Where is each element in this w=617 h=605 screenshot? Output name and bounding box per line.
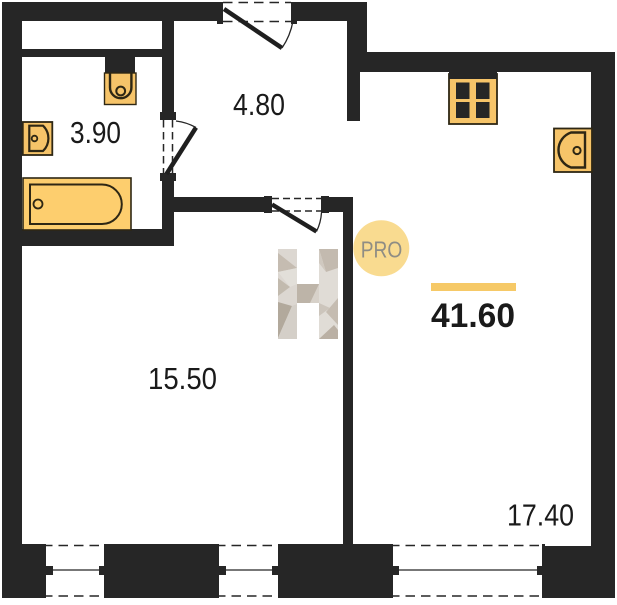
- svg-text:3.90: 3.90: [70, 115, 121, 150]
- svg-text:PRO: PRO: [361, 237, 403, 263]
- svg-text:41.60: 41.60: [431, 297, 515, 335]
- svg-text:17.40: 17.40: [507, 498, 574, 533]
- svg-text:15.50: 15.50: [148, 361, 217, 396]
- svg-text:4.80: 4.80: [233, 87, 285, 122]
